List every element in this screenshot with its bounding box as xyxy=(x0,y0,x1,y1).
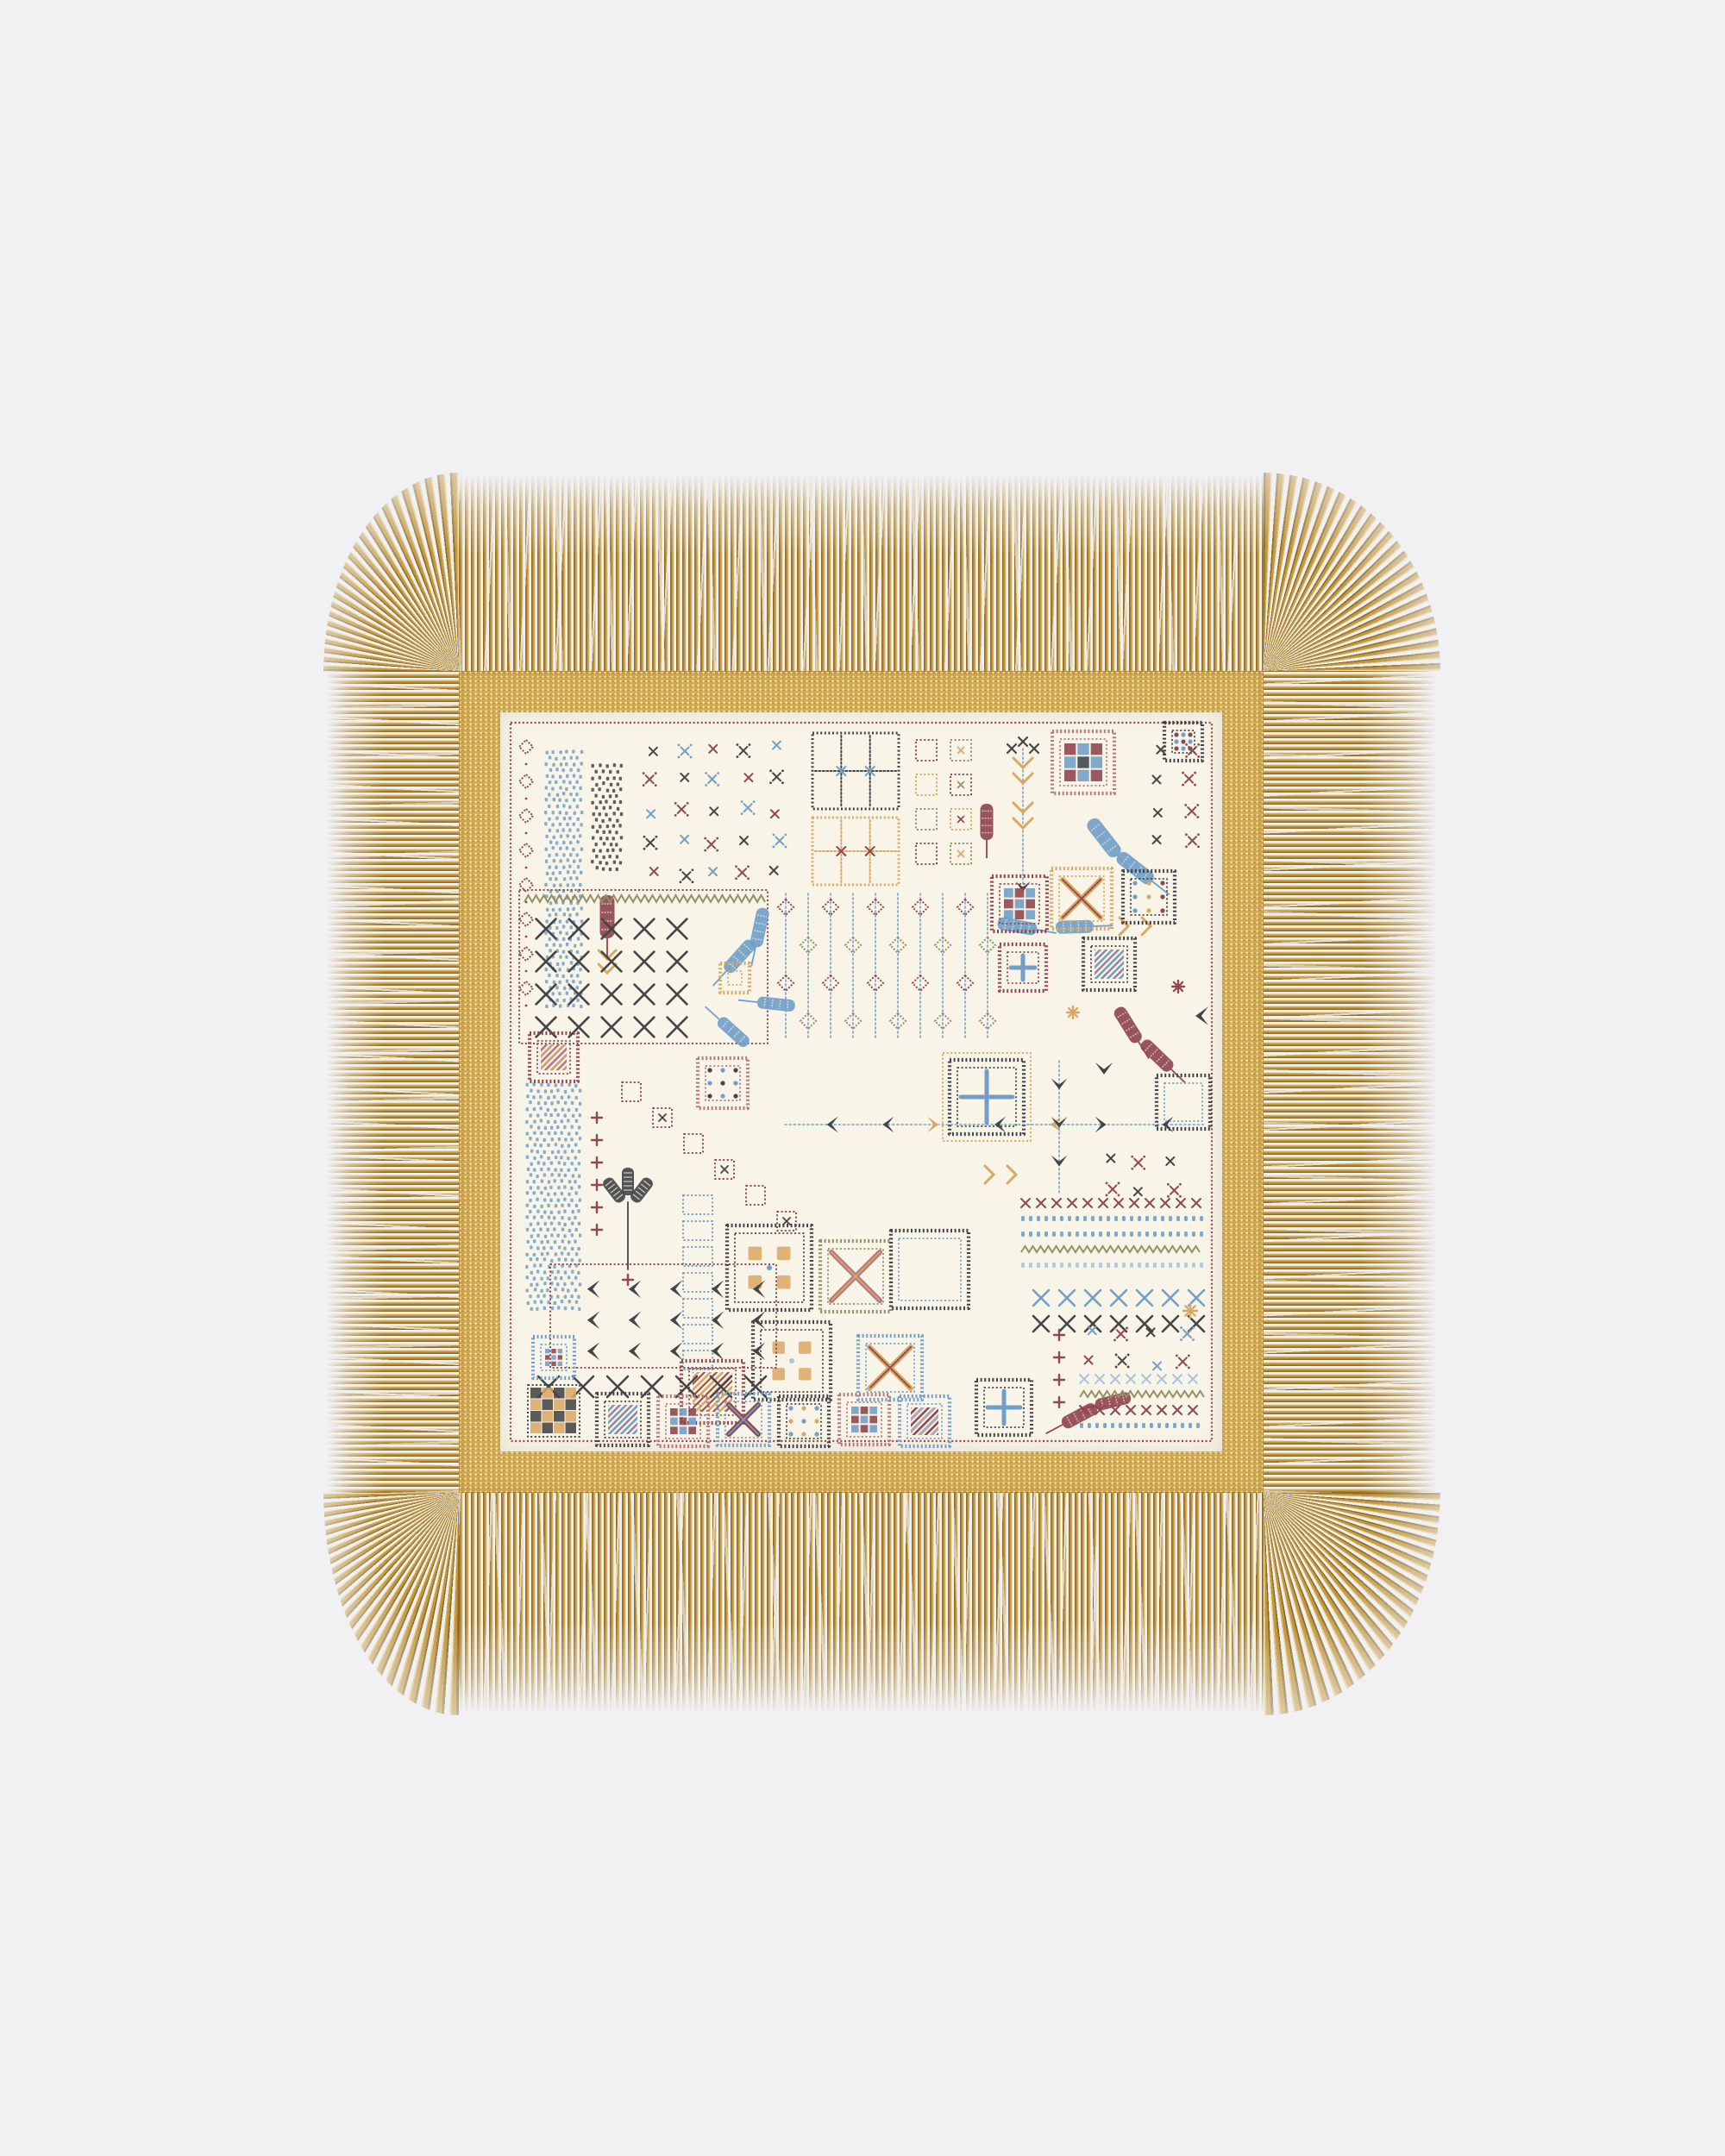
fringe-top-edge xyxy=(459,473,1264,671)
fringe-bottom-edge xyxy=(459,1493,1264,1715)
fringe-corner-bottom-left xyxy=(323,1493,459,1715)
fringe-right-edge xyxy=(1264,671,1440,1493)
fringe-left-edge xyxy=(323,671,459,1493)
embroidery-svg xyxy=(500,712,1222,1451)
product-photo-stage xyxy=(0,0,1725,2156)
fringe-corner-bottom-right xyxy=(1264,1493,1440,1715)
fabric-panel xyxy=(500,712,1222,1451)
fringe-corner-top-right xyxy=(1264,473,1440,671)
embroidered-textile xyxy=(459,671,1264,1493)
fringe-corner-top-left xyxy=(323,473,459,671)
